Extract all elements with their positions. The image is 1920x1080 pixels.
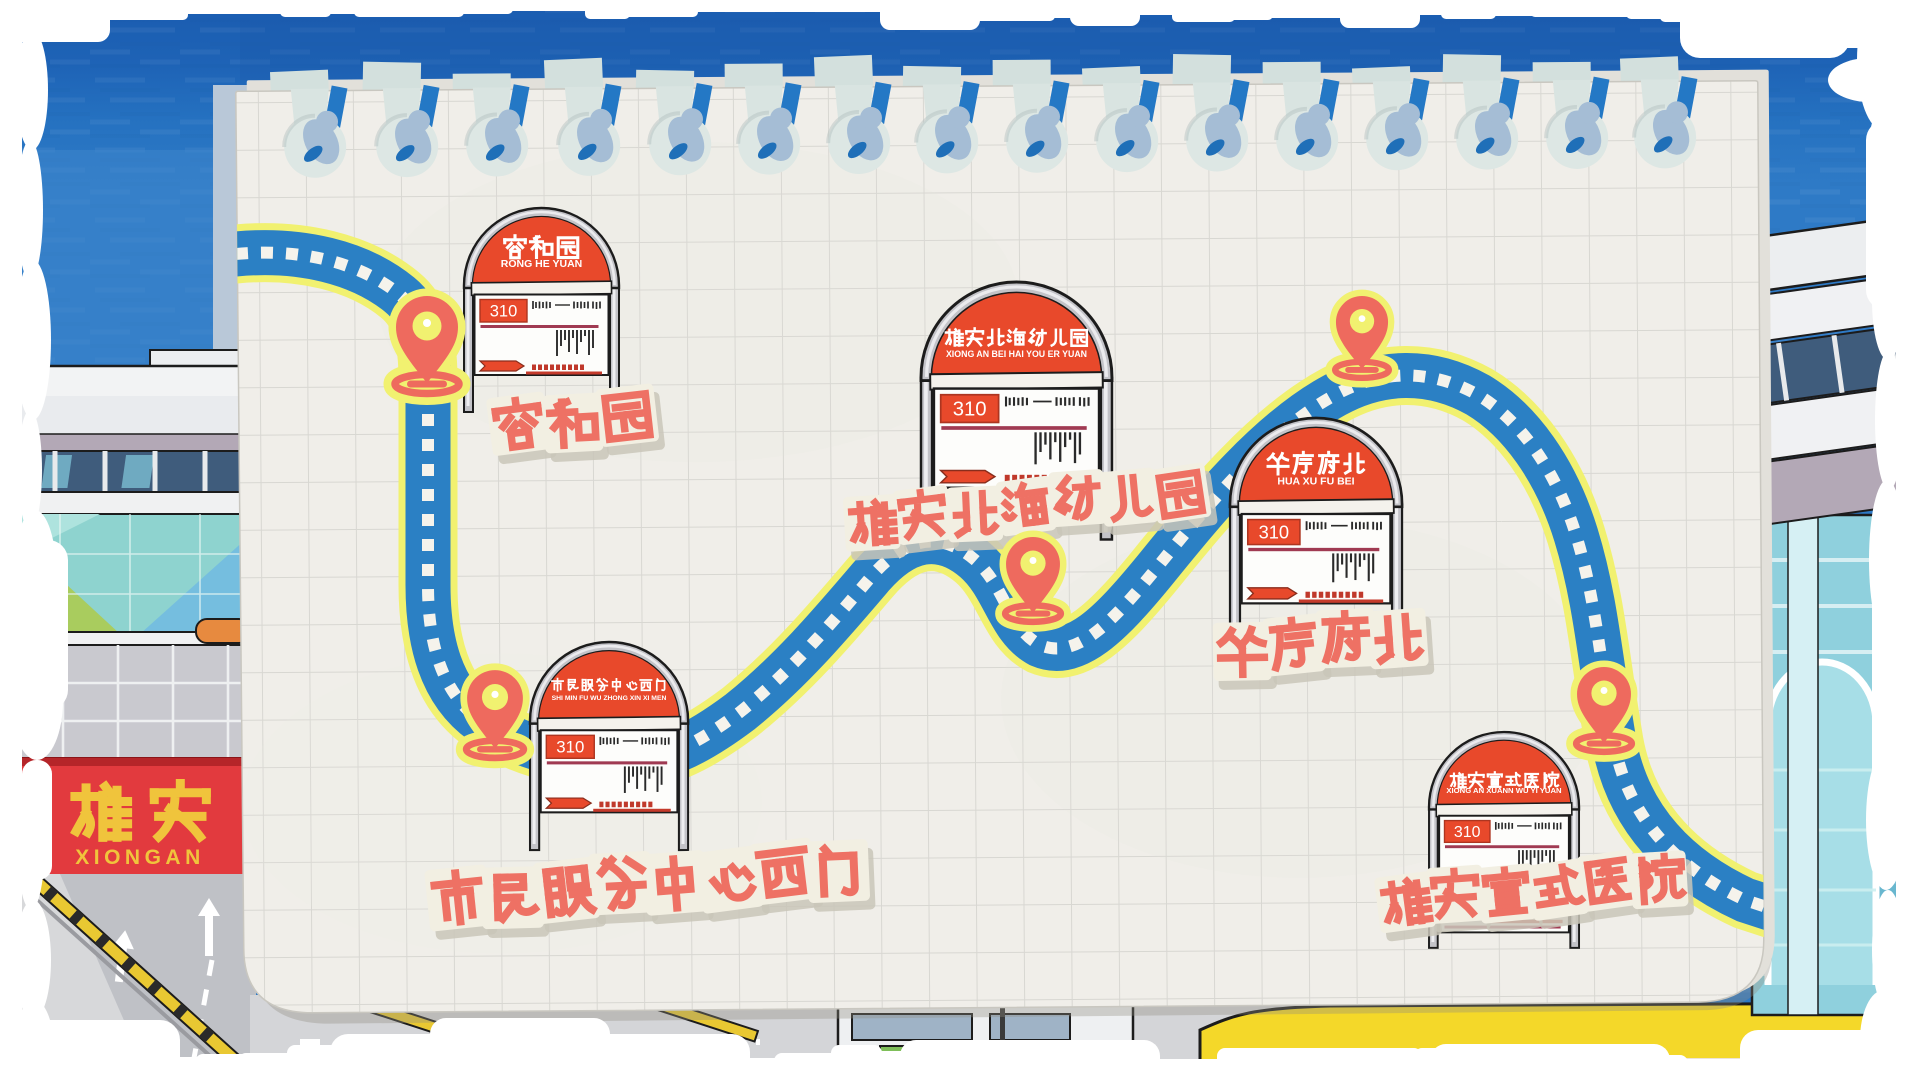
svg-text:RONG HE YUAN: RONG HE YUAN (501, 258, 582, 270)
svg-text:SHI MIN FU WU ZHONG XIN XI MEN: SHI MIN FU WU ZHONG XIN XI MEN (552, 695, 667, 702)
svg-text:XIONGAN: XIONGAN (75, 846, 205, 869)
svg-text:XIONG AN XUANN WU YI YUAN: XIONG AN XUANN WU YI YUAN (1446, 786, 1562, 795)
svg-text:HUA XU FU BEI: HUA XU FU BEI (1277, 476, 1354, 488)
svg-text:XIONG AN BEI HAI YOU ER YUAN: XIONG AN BEI HAI YOU ER YUAN (946, 349, 1087, 359)
